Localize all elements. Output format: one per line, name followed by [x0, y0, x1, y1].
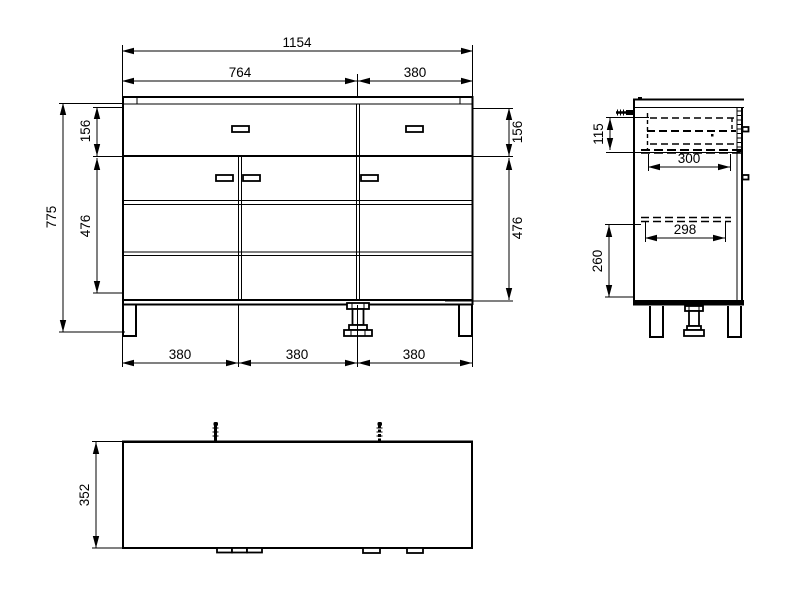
dim-label-156-right: 156: [510, 121, 525, 144]
technical-drawing-page: 1154 764 380 775 156 476 156 476 380 380…: [0, 0, 800, 600]
rear-tab: [743, 175, 749, 180]
rear-tab: [743, 127, 749, 132]
fitting-tab: [363, 548, 380, 553]
dim-label-300: 300: [678, 151, 701, 166]
furniture-dimension-drawing: 1154 764 380 775 156 476 156 476 380 380…: [0, 0, 800, 600]
top-panel-pin: [638, 97, 642, 100]
leg: [728, 306, 741, 337]
fitting-tab: [217, 548, 232, 553]
plan-knob: [213, 422, 219, 441]
fitting-tab: [407, 548, 423, 553]
door-handle: [216, 175, 233, 181]
cabinet-side-outline: [633, 97, 744, 306]
front-view: 1154 764 380 775 156 476 156 476 380 380…: [44, 35, 525, 367]
dim-label-span1: 380: [169, 347, 192, 362]
door-handle: [361, 175, 378, 181]
leg: [123, 305, 136, 336]
dim-label-span2: 380: [286, 347, 309, 362]
drawer-handle: [406, 126, 423, 132]
drawer-handles-front: [216, 126, 423, 181]
bottom-panel: [633, 300, 744, 306]
plan-knob: [377, 422, 383, 441]
leg: [459, 305, 472, 336]
adjustable-foot-side: [684, 306, 704, 336]
leg: [650, 306, 663, 337]
plan-dimensions: 352: [77, 442, 122, 549]
dim-label-right-width: 380: [404, 65, 427, 80]
side-view: 115 300 298 260: [590, 97, 749, 337]
hidden-drawer-lines: [641, 113, 741, 153]
dim-label-total-height: 775: [44, 206, 59, 229]
plan-view: 352: [77, 422, 473, 553]
door-handle: [243, 175, 260, 181]
dim-label-span3: 380: [403, 347, 426, 362]
dim-label-352: 352: [77, 484, 92, 507]
plan-outline: [122, 442, 473, 549]
dim-label-298: 298: [674, 222, 697, 237]
front-legs: [123, 305, 472, 336]
fitting-tab: [232, 548, 247, 553]
dim-label-476-left: 476: [78, 215, 93, 238]
dim-label-115: 115: [591, 123, 606, 145]
dim-label-156-left: 156: [78, 120, 93, 143]
dim-label-total-width: 1154: [282, 35, 312, 50]
dim-label-476-right: 476: [510, 217, 525, 240]
dim-label-left-width: 764: [229, 65, 252, 80]
hidden-shelf-lines: [641, 218, 731, 222]
side-knob: [616, 110, 633, 116]
fitting-tab: [247, 548, 262, 553]
dim-label-260: 260: [590, 250, 605, 273]
drawer-handle: [232, 126, 249, 132]
